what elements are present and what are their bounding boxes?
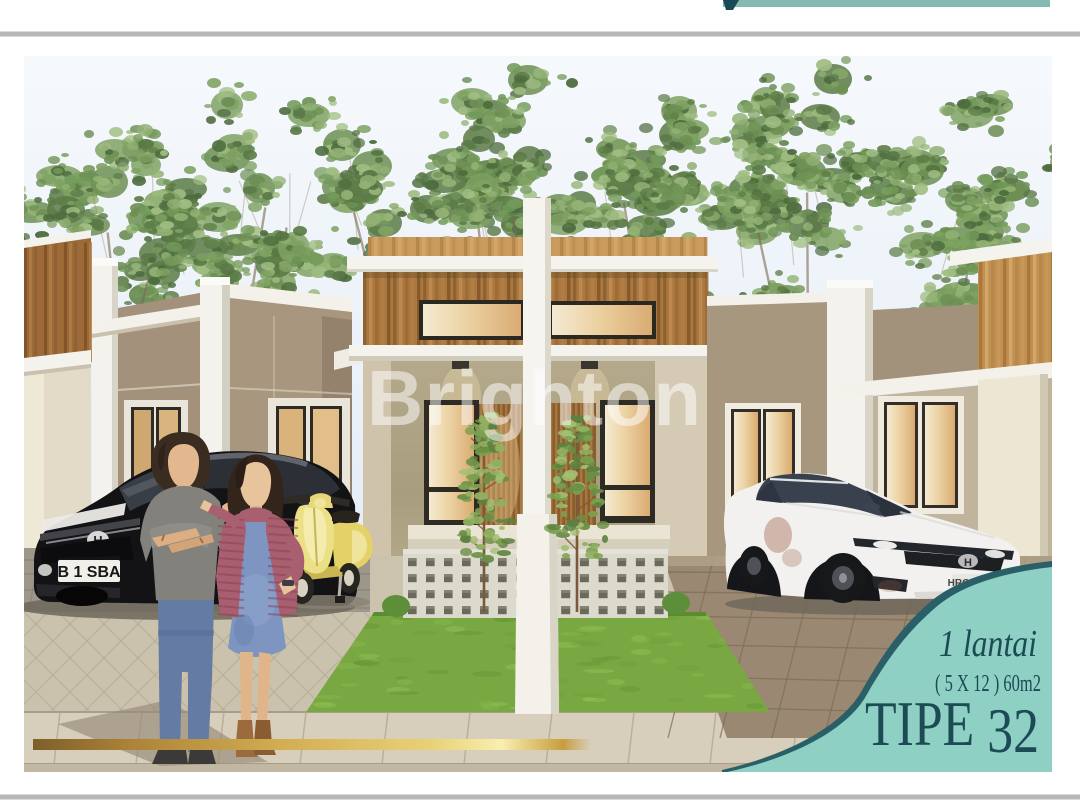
svg-text:Brighton: Brighton bbox=[367, 354, 701, 442]
svg-text:TIPE 32: TIPE 32 bbox=[865, 688, 1039, 766]
svg-text:B 1 SBA: B 1 SBA bbox=[57, 564, 121, 581]
svg-text:1 lantai: 1 lantai bbox=[939, 623, 1037, 665]
svg-text:H: H bbox=[964, 557, 972, 569]
